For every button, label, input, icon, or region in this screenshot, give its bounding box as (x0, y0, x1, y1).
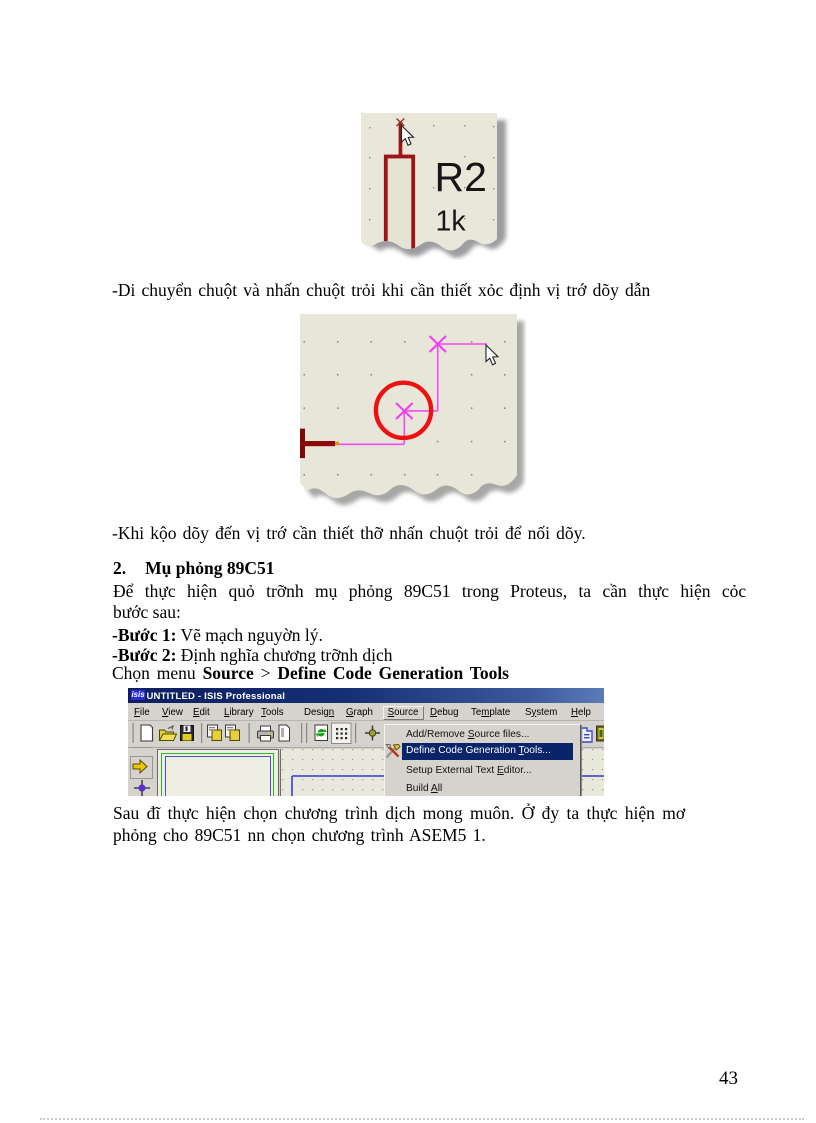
svg-text:R2: R2 (435, 154, 487, 200)
svg-text:1k: 1k (436, 206, 467, 238)
